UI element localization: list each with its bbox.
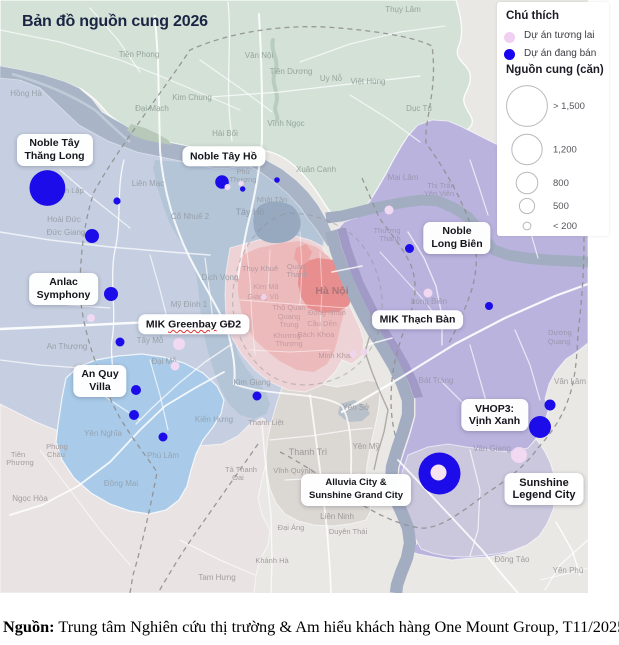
svg-text:Mai Lâm: Mai Lâm <box>388 173 419 182</box>
svg-text:Yên Phú: Yên Phú <box>553 566 584 575</box>
svg-text:Kim Mã: Kim Mã <box>253 282 279 291</box>
svg-text:Phú Lâm: Phú Lâm <box>147 451 179 460</box>
svg-text:< 200: < 200 <box>553 221 577 232</box>
svg-text:Thanh Trì: Thanh Trì <box>289 447 328 457</box>
svg-text:Bách Khoa: Bách Khoa <box>298 330 336 339</box>
svg-text:Dục Tú: Dục Tú <box>406 104 432 113</box>
svg-text:Nhật Tân: Nhật Tân <box>257 195 288 204</box>
svg-text:Thụy Lâm: Thụy Lâm <box>385 5 421 14</box>
svg-text:Yên Sở: Yên Sở <box>342 403 370 412</box>
svg-text:Đại Áng: Đại Áng <box>278 523 305 532</box>
svg-text:Bát Tràng: Bát Tràng <box>419 376 454 385</box>
svg-text:Kim Giang: Kim Giang <box>233 378 270 387</box>
svg-text:Dịch Vọng: Dịch Vọng <box>202 273 239 282</box>
svg-text:Thổ Quan: Thổ Quan <box>272 303 305 312</box>
svg-text:Minh Khai: Minh Khai <box>318 351 352 360</box>
svg-text:Vân Nội: Vân Nội <box>245 51 274 60</box>
svg-text:Đức Giang: Đức Giang <box>47 228 86 237</box>
svg-text:Yên Viên: Yên Viên <box>424 189 454 198</box>
svg-text:1,200: 1,200 <box>553 145 577 156</box>
svg-text:500: 500 <box>553 201 569 212</box>
svg-text:Tây Mỗ: Tây Mỗ <box>137 336 164 345</box>
svg-text:Cổ Nhuế 2: Cổ Nhuế 2 <box>171 212 210 221</box>
svg-text:Tiên Dương: Tiên Dương <box>270 67 313 76</box>
svg-text:Liên Mạc: Liên Mạc <box>132 179 164 188</box>
svg-text:Hoài Đức: Hoài Đức <box>47 215 81 224</box>
svg-text:Đồng Nhân: Đồng Nhân <box>308 308 346 317</box>
svg-text:> 1,500: > 1,500 <box>553 101 585 112</box>
svg-text:Thượng: Thượng <box>275 339 302 348</box>
svg-text:Việt Hùng: Việt Hùng <box>351 77 386 86</box>
svg-text:Thụy Khuê: Thụy Khuê <box>242 264 278 273</box>
svg-text:An Thượng: An Thượng <box>47 342 88 351</box>
svg-text:Thanh: Thanh <box>379 234 400 243</box>
svg-text:Hà Nội: Hà Nội <box>315 285 348 297</box>
svg-text:Trung: Trung <box>279 320 298 329</box>
svg-text:Kim Chung: Kim Chung <box>172 93 212 102</box>
svg-text:Đồng Mai: Đồng Mai <box>104 479 138 488</box>
svg-text:Yên Nghĩa: Yên Nghĩa <box>84 429 122 438</box>
svg-text:Thanh Liệt: Thanh Liệt <box>248 418 284 427</box>
svg-text:Long Biên: Long Biên <box>411 297 447 306</box>
svg-text:Phương: Phương <box>6 458 33 467</box>
svg-text:800: 800 <box>553 178 569 189</box>
svg-text:Cầu Dền: Cầu Dền <box>307 319 337 328</box>
svg-text:Đại Mạch: Đại Mạch <box>135 104 169 113</box>
svg-text:Quang: Quang <box>548 337 571 346</box>
svg-text:Kiến Hưng: Kiến Hưng <box>195 415 233 424</box>
svg-text:Thánh: Thánh <box>286 270 307 279</box>
svg-text:Dương: Dương <box>548 328 572 337</box>
svg-text:Duyên Thái: Duyên Thái <box>329 527 368 536</box>
svg-text:Văn Lâm: Văn Lâm <box>554 377 586 386</box>
svg-text:Oai: Oai <box>232 473 244 482</box>
svg-text:Hải Bối: Hải Bối <box>212 129 238 138</box>
svg-text:Tam Hưng: Tam Hưng <box>198 573 235 582</box>
svg-text:Văn Giang: Văn Giang <box>473 444 511 453</box>
svg-text:Yên Mỹ: Yên Mỹ <box>352 442 379 451</box>
svg-text:Vĩnh Ngọc: Vĩnh Ngọc <box>267 119 304 128</box>
svg-text:Tiền Phong: Tiền Phong <box>119 50 160 59</box>
svg-text:Xuân Canh: Xuân Canh <box>296 165 336 174</box>
svg-text:Uy Nỗ: Uy Nỗ <box>320 74 343 83</box>
svg-text:Khánh Hà: Khánh Hà <box>255 556 289 565</box>
svg-text:Tây Hồ: Tây Hồ <box>235 207 264 217</box>
svg-text:Mỹ Đình 1: Mỹ Đình 1 <box>171 300 208 309</box>
svg-text:Ngọc Hòa: Ngọc Hòa <box>12 494 48 503</box>
svg-text:Hồng Hà: Hồng Hà <box>10 89 42 98</box>
svg-text:Liên Ninh: Liên Ninh <box>320 512 354 521</box>
svg-text:Đông Tảo: Đông Tảo <box>495 555 531 564</box>
svg-text:Châu: Châu <box>47 450 65 459</box>
